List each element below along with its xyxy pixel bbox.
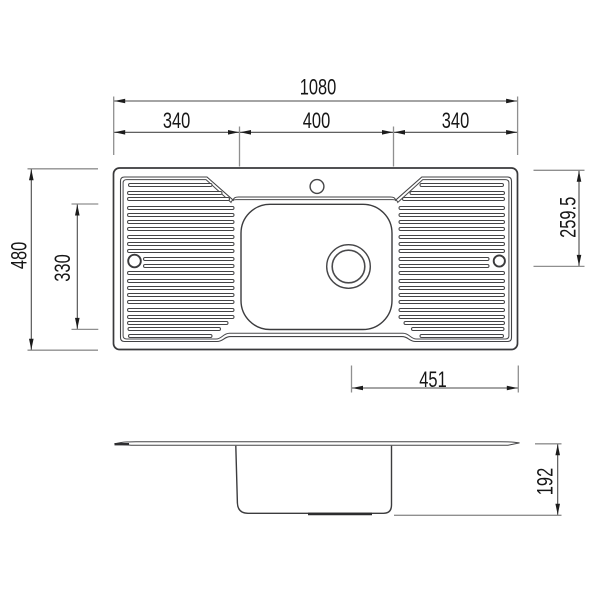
svg-text:340: 340	[442, 109, 469, 134]
svg-text:480: 480	[7, 242, 32, 269]
svg-text:192: 192	[533, 468, 558, 495]
svg-text:1080: 1080	[300, 75, 337, 100]
svg-text:340: 340	[163, 109, 190, 134]
svg-text:330: 330	[50, 254, 75, 281]
svg-text:451: 451	[419, 367, 446, 392]
svg-text:259.5: 259.5	[556, 197, 581, 238]
svg-text:400: 400	[303, 109, 330, 134]
